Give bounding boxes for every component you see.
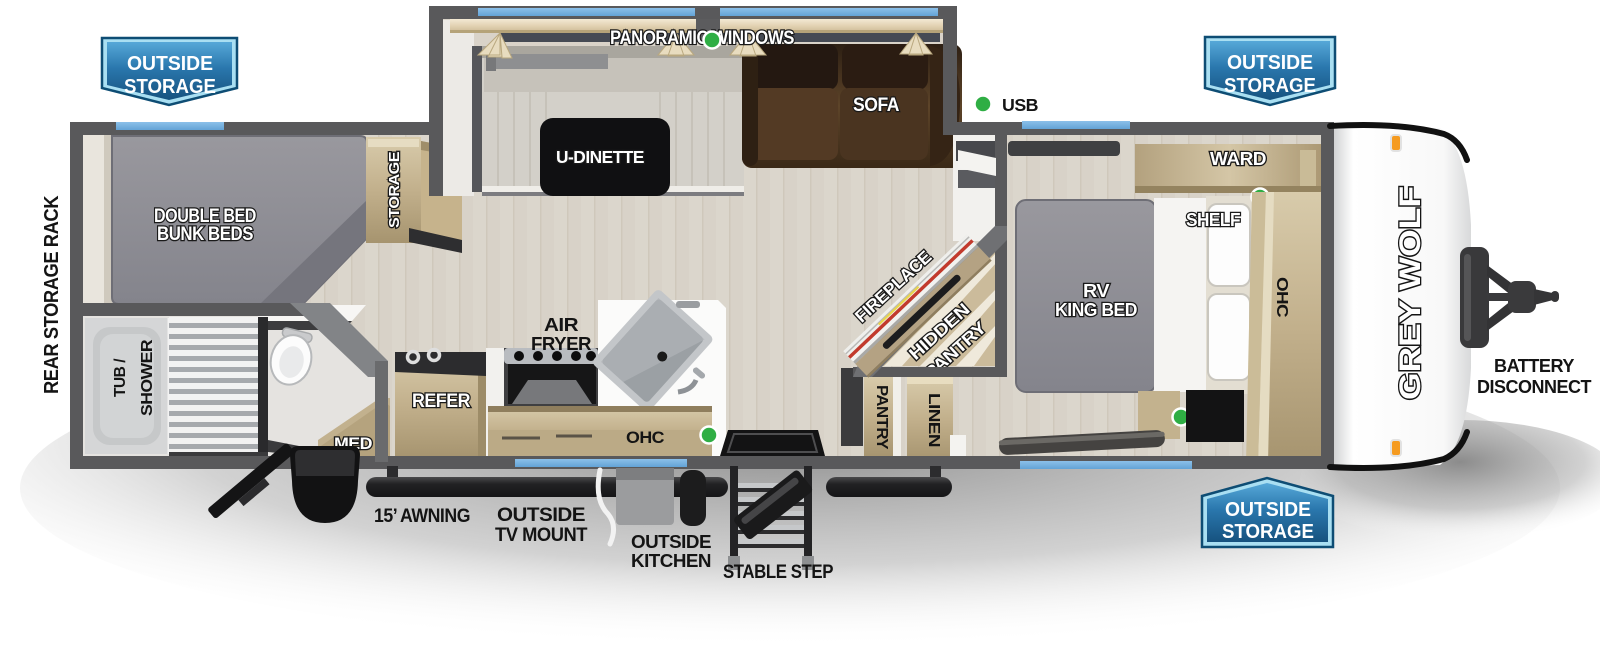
svg-text:PANTRY: PANTRY — [873, 385, 890, 450]
svg-text:OUTSIDE: OUTSIDE — [1227, 52, 1313, 74]
svg-text:BATTERY: BATTERY — [1494, 355, 1575, 376]
svg-text:USB: USB — [1002, 95, 1038, 115]
svg-text:WARD: WARD — [1210, 149, 1267, 169]
svg-text:AIR: AIR — [544, 315, 579, 335]
svg-text:OUTSIDE: OUTSIDE — [497, 505, 585, 526]
svg-text:STABLE STEP: STABLE STEP — [723, 561, 833, 583]
svg-text:BUNK BEDS: BUNK BEDS — [157, 224, 253, 245]
svg-text:REFER: REFER — [412, 391, 471, 412]
svg-text:PANORAMIC WINDOWS: PANORAMIC WINDOWS — [610, 27, 794, 49]
svg-text:STORAGE: STORAGE — [1222, 521, 1314, 543]
svg-text:STORAGE: STORAGE — [124, 76, 216, 98]
svg-text:OUTSIDE: OUTSIDE — [631, 531, 711, 552]
svg-text:OUTSIDE: OUTSIDE — [127, 53, 213, 75]
svg-text:SOFA: SOFA — [853, 95, 900, 116]
svg-text:TUB /: TUB / — [112, 358, 129, 397]
svg-text:STORAGE: STORAGE — [1224, 75, 1316, 97]
svg-text:SHELF: SHELF — [1186, 210, 1240, 230]
svg-text:U-DINETTE: U-DINETTE — [556, 147, 644, 167]
svg-text:REAR STORAGE RACK: REAR STORAGE RACK — [41, 195, 63, 394]
svg-text:KING BED: KING BED — [1055, 300, 1137, 320]
svg-text:OUTSIDE: OUTSIDE — [1225, 499, 1311, 521]
svg-text:15’ AWNING: 15’ AWNING — [374, 506, 470, 527]
svg-text:TV MOUNT: TV MOUNT — [495, 525, 588, 546]
svg-text:FRYER: FRYER — [531, 334, 592, 354]
svg-text:RV: RV — [1083, 281, 1110, 301]
svg-text:SHOWER: SHOWER — [139, 340, 156, 416]
svg-text:OHC: OHC — [1273, 277, 1290, 317]
svg-text:DISCONNECT: DISCONNECT — [1477, 376, 1592, 397]
svg-text:OHC: OHC — [626, 428, 664, 447]
svg-text:LINEN: LINEN — [925, 393, 942, 447]
svg-text:KITCHEN: KITCHEN — [631, 550, 711, 571]
svg-text:STORAGE: STORAGE — [386, 151, 403, 228]
svg-text:GREY WOLF: GREY WOLF — [1394, 186, 1427, 400]
